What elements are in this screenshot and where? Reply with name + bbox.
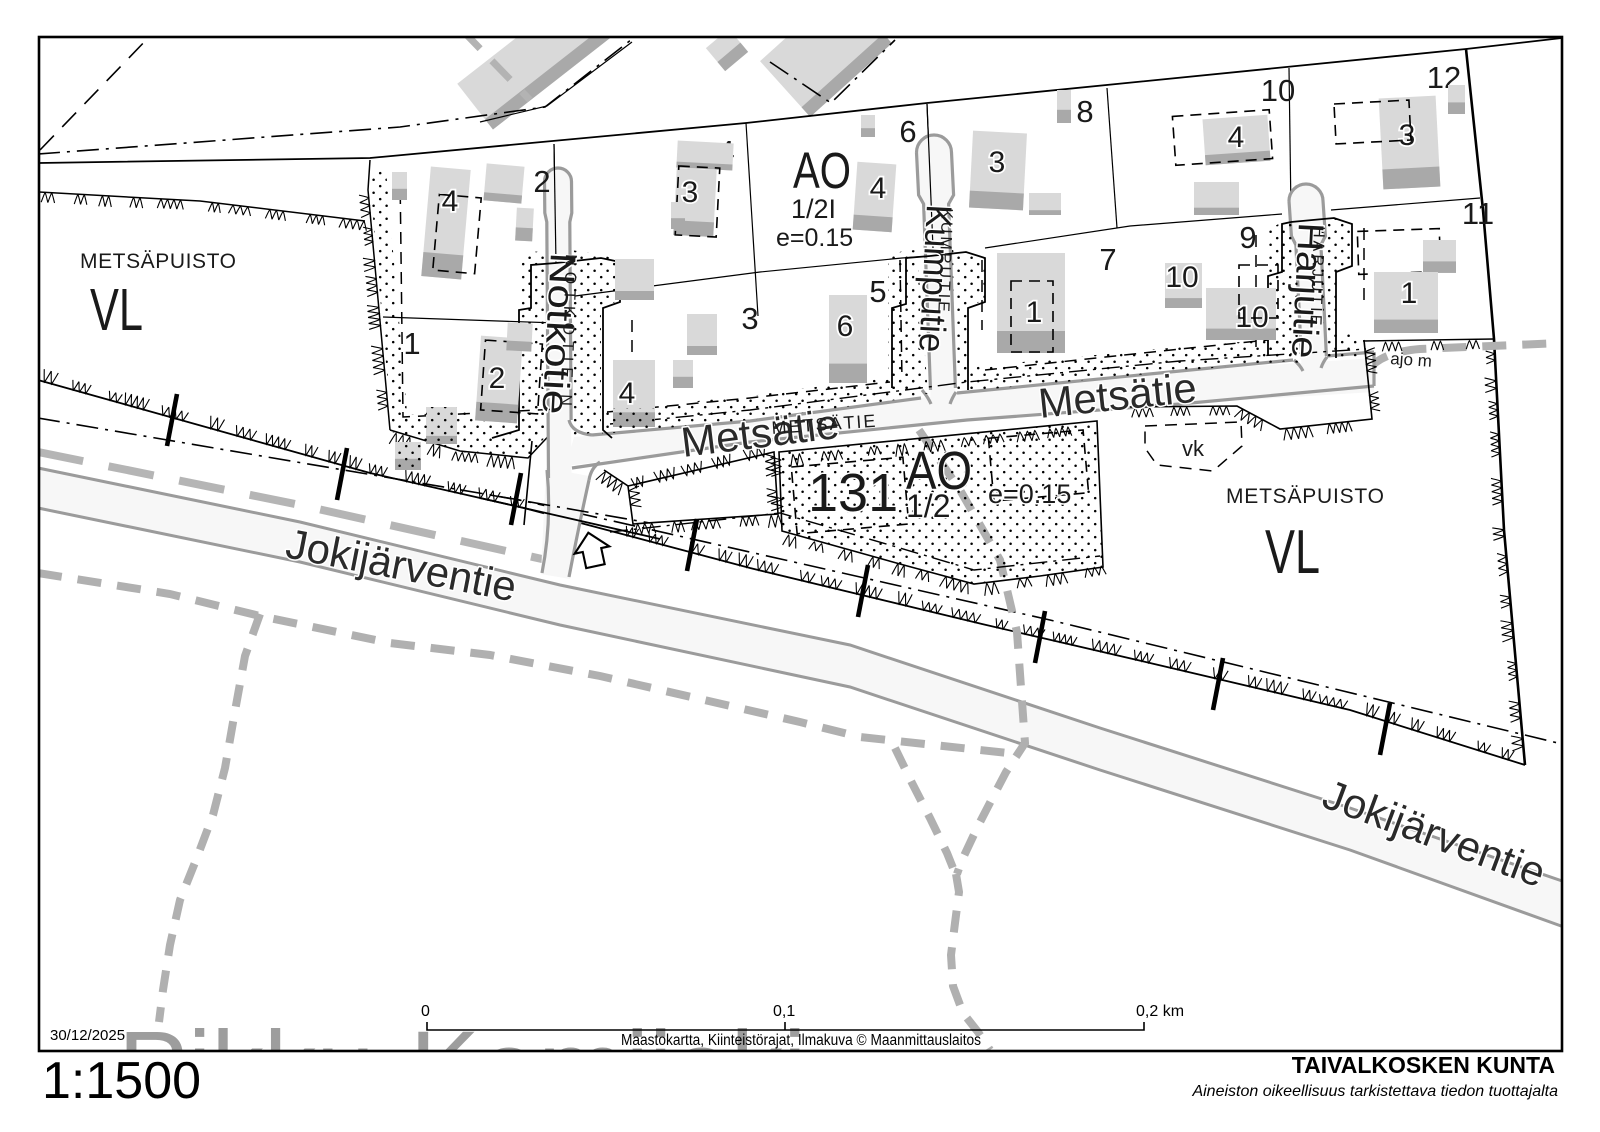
svg-text:METSÄPUISTO: METSÄPUISTO (1226, 485, 1384, 508)
svg-text:e=0.15: e=0.15 (776, 224, 853, 252)
svg-text:vk: vk (1182, 436, 1205, 461)
svg-text:0,1: 0,1 (773, 1003, 795, 1020)
svg-text:3: 3 (741, 301, 758, 336)
svg-text:1: 1 (1026, 296, 1043, 329)
svg-text:1:1500: 1:1500 (42, 1052, 201, 1110)
svg-text:0: 0 (421, 1003, 430, 1020)
svg-text:ajo m: ajo m (1390, 349, 1433, 371)
svg-text:6: 6 (837, 310, 854, 343)
svg-text:4: 4 (619, 377, 636, 410)
svg-text:10: 10 (1261, 73, 1295, 108)
svg-text:9: 9 (1239, 220, 1256, 255)
svg-text:10: 10 (1165, 261, 1198, 294)
svg-text:1: 1 (403, 326, 420, 361)
svg-text:0,2 km: 0,2 km (1136, 1003, 1184, 1020)
svg-text:3: 3 (989, 146, 1006, 179)
svg-text:3: 3 (1399, 119, 1416, 152)
svg-text:HARJUTIE: HARJUTIE (1306, 226, 1327, 329)
svg-text:AO: AO (793, 142, 851, 199)
svg-text:Maastokartta, Kiinteistörajat,: Maastokartta, Kiinteistörajat, Ilmakuva … (621, 1032, 981, 1049)
svg-text:VL: VL (1265, 518, 1320, 587)
svg-text:VL: VL (90, 277, 143, 343)
svg-text:1: 1 (1401, 277, 1418, 310)
svg-text:6: 6 (899, 114, 916, 149)
svg-text:1/2: 1/2 (906, 488, 950, 524)
svg-text:11: 11 (1462, 196, 1494, 231)
svg-text:30/12/2025: 30/12/2025 (50, 1027, 125, 1044)
svg-text:Aineiston oikeellisuus tarkist: Aineiston oikeellisuus tarkistettava tie… (1191, 1083, 1558, 1100)
svg-text:2: 2 (533, 164, 550, 199)
svg-text:1/2I: 1/2I (791, 194, 836, 224)
svg-text:TAIVALKOSKEN KUNTA: TAIVALKOSKEN KUNTA (1292, 1052, 1555, 1078)
svg-text:131: 131 (808, 463, 898, 523)
svg-text:4: 4 (1228, 121, 1245, 154)
svg-text:4: 4 (442, 185, 459, 218)
svg-text:2: 2 (489, 362, 506, 395)
svg-text:METSÄPUISTO: METSÄPUISTO (80, 250, 236, 273)
svg-text:5: 5 (869, 274, 886, 309)
svg-text:8: 8 (1076, 94, 1093, 129)
svg-text:4: 4 (870, 172, 887, 205)
svg-text:7: 7 (1099, 242, 1116, 277)
svg-text:e=0.15: e=0.15 (988, 479, 1071, 509)
